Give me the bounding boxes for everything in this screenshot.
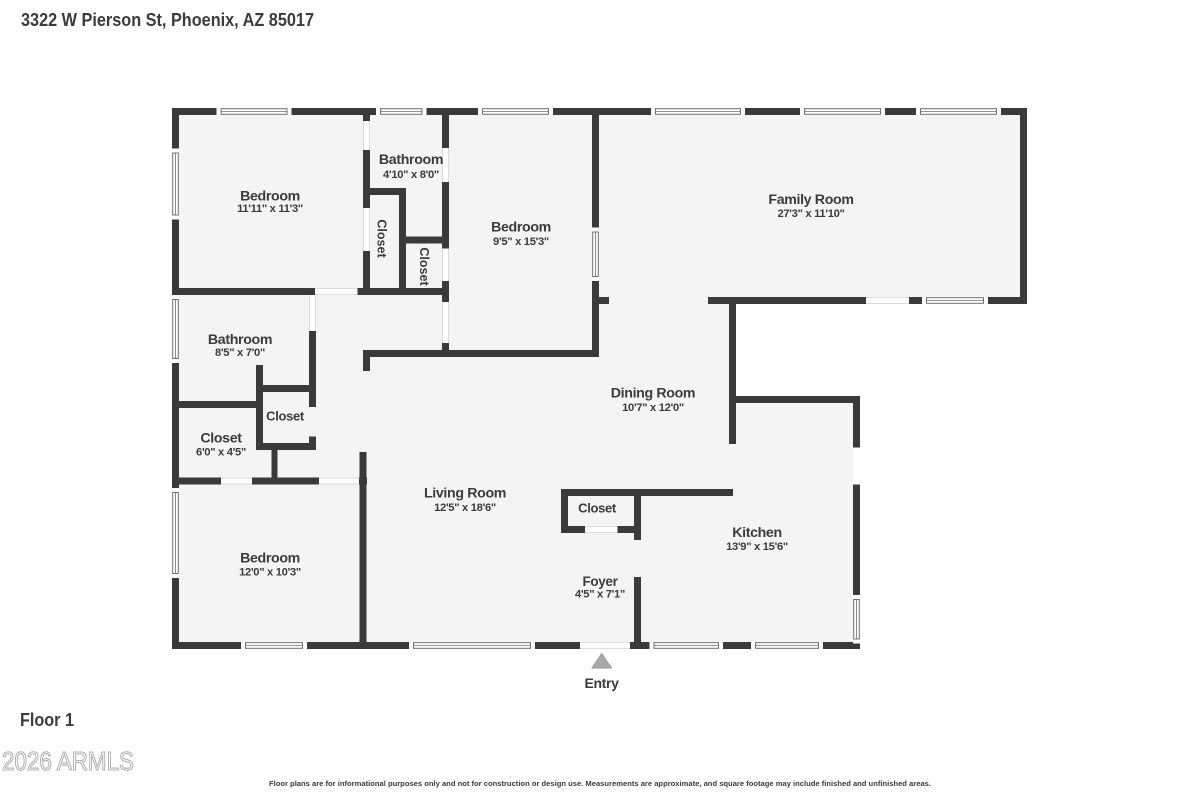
svg-text:Kitchen: Kitchen [732, 525, 782, 541]
svg-text:Closet: Closet [417, 247, 431, 286]
svg-text:12'0" x 10'3": 12'0" x 10'3" [239, 567, 301, 579]
svg-text:Bathroom: Bathroom [379, 152, 443, 168]
svg-text:4'10" x 8'0": 4'10" x 8'0" [383, 169, 439, 181]
svg-text:Entry: Entry [584, 675, 619, 691]
svg-text:11'11" x 11'3": 11'11" x 11'3" [237, 203, 303, 215]
svg-text:Closet: Closet [578, 501, 617, 516]
svg-text:13'9" x 15'6": 13'9" x 15'6" [726, 541, 788, 553]
svg-text:12'5" x 18'6": 12'5" x 18'6" [434, 502, 496, 514]
svg-text:Closet: Closet [200, 431, 242, 447]
svg-text:Bathroom: Bathroom [208, 332, 272, 348]
svg-text:Closet: Closet [266, 409, 305, 424]
svg-text:Floor plans are for informatio: Floor plans are for informational purpos… [269, 779, 931, 788]
svg-text:27'3" x 11'10": 27'3" x 11'10" [777, 208, 844, 220]
svg-text:Bedroom: Bedroom [240, 551, 300, 567]
svg-text:Foyer: Foyer [582, 574, 618, 589]
svg-text:Bedroom: Bedroom [491, 220, 551, 236]
svg-text:6'0" x 4'5": 6'0" x 4'5" [196, 447, 246, 459]
svg-text:Family Room: Family Room [768, 192, 853, 208]
svg-text:10'7" x 12'0": 10'7" x 12'0" [622, 402, 684, 414]
svg-text:2026 ARMLS: 2026 ARMLS [2, 746, 134, 776]
svg-text:9'5" x 15'3": 9'5" x 15'3" [493, 236, 549, 248]
svg-text:8'5" x 7'0": 8'5" x 7'0" [215, 347, 265, 359]
svg-text:4'5" x 7'1": 4'5" x 7'1" [575, 589, 625, 601]
svg-text:Floor 1: Floor 1 [20, 710, 74, 730]
svg-text:Dining Room: Dining Room [611, 386, 695, 402]
svg-text:3322 W Pierson St, Phoenix, AZ: 3322 W Pierson St, Phoenix, AZ 85017 [21, 9, 314, 30]
svg-text:Closet: Closet [375, 219, 389, 258]
svg-text:Living Room: Living Room [424, 486, 506, 502]
